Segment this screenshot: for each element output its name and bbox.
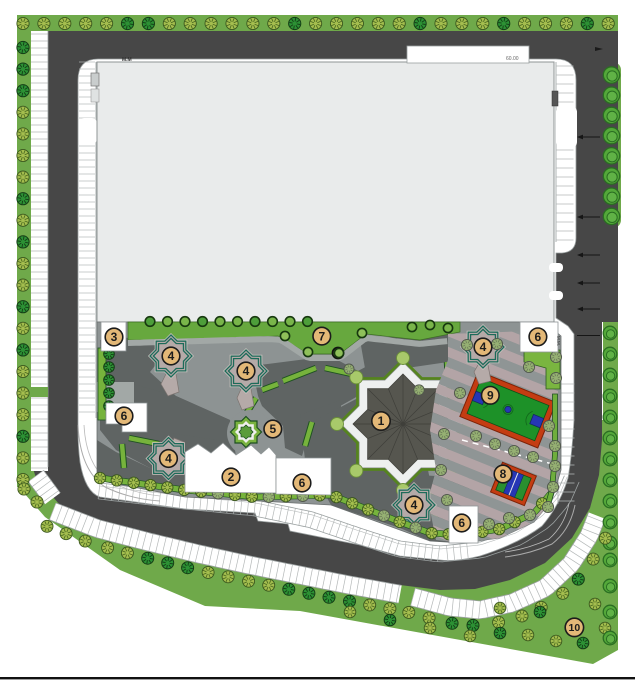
svg-text:M.M.: M.M.: [556, 336, 561, 346]
svg-text:4: 4: [165, 452, 172, 466]
svg-text:5: 5: [269, 422, 276, 436]
svg-text:6: 6: [299, 476, 306, 490]
svg-text:4: 4: [411, 498, 418, 512]
svg-text:6: 6: [121, 409, 128, 423]
svg-text:9: 9: [487, 389, 494, 403]
svg-text:2: 2: [228, 470, 235, 484]
svg-text:3: 3: [111, 330, 118, 344]
svg-text:6: 6: [535, 330, 542, 344]
svg-text:M.M: M.M: [122, 57, 132, 63]
svg-text:4: 4: [480, 340, 487, 354]
svg-text:8: 8: [500, 467, 507, 481]
svg-text:4: 4: [168, 349, 175, 363]
svg-text:60.00: 60.00: [506, 56, 519, 62]
svg-text:4: 4: [243, 364, 250, 378]
svg-text:1: 1: [378, 414, 385, 428]
svg-text:7: 7: [318, 329, 325, 343]
svg-text:6: 6: [458, 516, 465, 530]
svg-text:10: 10: [569, 622, 581, 634]
